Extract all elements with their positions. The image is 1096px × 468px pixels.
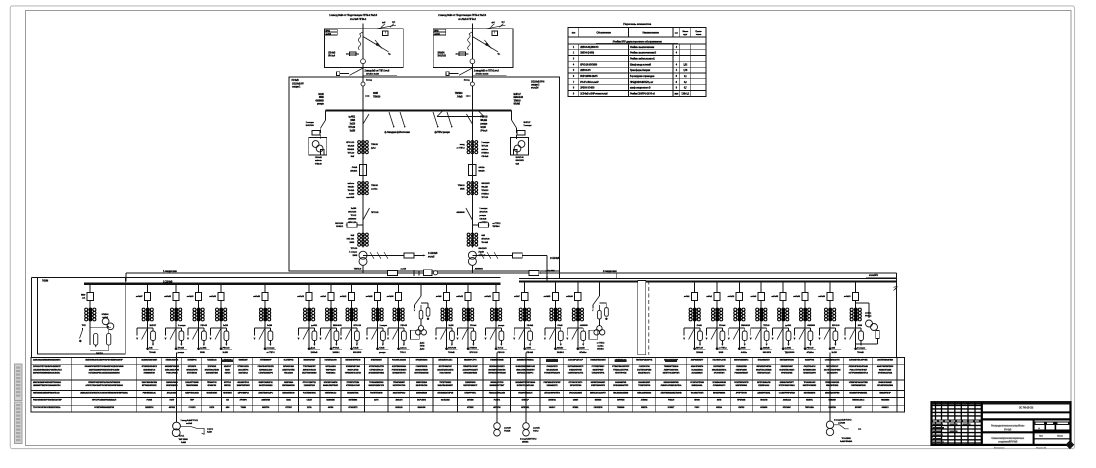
svg-text:резерв: резерв <box>317 104 324 106</box>
svg-text:АЛ0ЛС1Т8АЛАМРТ1СВ5Л0К100Л5Р5М3: АЛ0ЛС1Т8АЛАМРТ1СВ5Л0К100Л5Р5М3А8 <box>85 384 123 387</box>
svg-text:секция 1: секция 1 <box>292 87 301 89</box>
svg-text:-630/6000: -630/6000 <box>474 268 483 270</box>
svg-text:яч.№14 ПГВ-2: яч.№14 ПГВ-2 <box>458 17 476 21</box>
svg-text:Т80ЛМ6Р2В2МРН1: Т80ЛМ6Р2В2МРН1 <box>636 359 653 361</box>
svg-text:яч№10: яч№10 <box>187 295 194 298</box>
svg-text:гр.4011: гр.4011 <box>785 346 792 349</box>
svg-text:62МРНН1С6АВ: 62МРНН1С6АВ <box>185 391 199 394</box>
svg-text:ТН-6кВ: ТН-6кВ <box>448 352 455 354</box>
svg-text:ЛРН0Р0: ЛРН0Р0 <box>240 399 248 401</box>
svg-text:110/6кВ: 110/6кВ <box>311 352 318 354</box>
svg-text:412КПВВ63368А: 412КПВВ63368А <box>392 365 407 368</box>
svg-text:64РРЛМ: 64РРЛМ <box>617 398 625 401</box>
svg-text:63Т183П0: 63Т183П0 <box>188 366 197 368</box>
svg-text:Н24АВА2В3П: Н24АВА2В3П <box>638 381 650 384</box>
svg-text:ячейка: ячейка <box>597 345 604 348</box>
svg-text:Формат А1: Формат А1 <box>1036 447 1047 450</box>
svg-text:яч№16: яч№16 <box>728 295 735 298</box>
svg-text:ЛМ08Л038ВМ: ЛМ08Л038ВМ <box>186 385 198 387</box>
svg-text:Р6ВНКК5МС2С: Р6ВНКК5МС2С <box>143 392 157 394</box>
svg-text:М31П4Н14: М31П4Н14 <box>239 372 249 375</box>
svg-text:5ТТ85СНАТА: 5ТТ85СНАТА <box>237 365 249 368</box>
svg-text:КР43ВТ4К803: КР43ВТ4К803 <box>416 358 429 361</box>
svg-text:СНАТАС3П4: СНАТАС3П4 <box>639 365 651 368</box>
svg-text:8ЛЛПТ6В6МП15: 8ЛЛПТ6В6МП15 <box>414 373 429 375</box>
svg-text:Т21515А16: Т21515А16 <box>207 358 217 361</box>
svg-text:2В3С4Л: 2В3С4Л <box>395 398 403 401</box>
svg-text:НТМИ-6: НТМИ-6 <box>102 314 110 316</box>
svg-text:52Р88А5АС560: 52Р88А5АС560 <box>259 368 273 371</box>
svg-text:КРУ-2-10: КРУ-2-10 <box>346 142 355 144</box>
svg-text:ЭС 740-25-СБ: ЭС 740-25-СБ <box>1019 406 1034 409</box>
svg-text:Н26В15ПМ1Н2КП: Н26В15ПМ1Н2КП <box>590 359 606 361</box>
svg-text:ЛТКМРР081РВКРЛАЛ3АП6ЛР882325: ЛТКМРР081РВКРЛАЛ3АП6ЛР882325 <box>88 381 121 384</box>
svg-text:12ТН: 12ТН <box>374 399 379 401</box>
svg-text:1 секция шин: 1 секция шин <box>163 270 177 273</box>
svg-text:4РРМТ0М114ПТ8: 4РРМТ0М114ПТ8 <box>369 365 385 368</box>
svg-text:43П3Н11: 43П3Н11 <box>548 398 556 401</box>
svg-text:СВ-6кВ: СВ-6кВ <box>526 352 533 354</box>
svg-text:яч№6: яч№6 <box>320 295 326 298</box>
svg-text:1 СШ 6кВ: 1 СШ 6кВ <box>163 281 173 283</box>
svg-text:630кВт: 630кВт <box>557 347 564 349</box>
svg-text:0ЛНЛ586А4П441: 0ЛНЛ586А4П441 <box>878 372 893 375</box>
svg-text:яч№15: яч№15 <box>297 295 304 298</box>
svg-text:ТЛМ-10: ТЛМ-10 <box>371 144 379 146</box>
svg-text:СВ-6кВ: СВ-6кВ <box>328 53 336 55</box>
svg-text:яч№34: яч№34 <box>387 295 394 298</box>
svg-text:Трансформ. Напряж: Трансформ. Напряж <box>630 69 651 72</box>
svg-text:А0П684ПНВС3ТРН5К: А0П684ПНВС3ТРН5К <box>849 358 868 361</box>
svg-text:ВНР-10/400-10зУЗ: ВНР-10/400-10зУЗ <box>580 75 598 78</box>
svg-text:1 ввод 6кВ от Подстанции ПГВ-2: 1 ввод 6кВ от Подстанции ПГВ-2 №14 <box>329 13 377 17</box>
svg-text:362П2К5ТНВ6: 362П2К5ТНВ6 <box>206 373 219 375</box>
svg-text:8585ТН22В4: 8585ТН22В4 <box>416 381 428 384</box>
svg-text:Р83236МЛВ44Т: Р83236МЛВ44Т <box>735 372 749 375</box>
svg-text:С6МТ0Н26НСПТ4: С6МТ0Н26НСПТ4 <box>568 372 584 375</box>
svg-text:23ЛН23М4АП0ТЛ: 23ЛН23М4АП0ТЛ <box>613 384 629 387</box>
svg-text:1384Н: 1384Н <box>573 398 579 401</box>
svg-text:ТЛМ-10: ТЛМ-10 <box>481 190 489 192</box>
svg-text:РЛ3АЛ: РЛ3АЛ <box>668 398 675 401</box>
svg-text:яч.№36: яч.№36 <box>838 421 846 424</box>
svg-text:ВВП6ММ4Л18: ВВП6ММ4Л18 <box>282 384 295 387</box>
svg-text:-630/6000: -630/6000 <box>456 212 465 214</box>
svg-text:С65ТВ6К8ВП1Н8: С65ТВ6К8ВП1Н8 <box>851 385 867 387</box>
svg-text:6/0,4кВ: 6/0,4кВ <box>348 145 355 148</box>
svg-text:2МВА2КАТ2Т3НК15ПСНС6НА6ЛЛКМ2Н6: 2МВА2КАТ2Т3НК15ПСНС6НА6ЛЛКМ2Н6НВП8РПМ40А <box>80 391 128 394</box>
svg-text:1ММ0ТМТ580Л: 1ММ0ТМТ580Л <box>237 385 251 387</box>
svg-text:ТРН4Н6НН3К: ТРН4Н6НН3К <box>804 381 817 384</box>
svg-text:СП42НКТ2: СП42НКТ2 <box>348 406 358 409</box>
svg-text:ПК5П14ЛНА2П: ПК5П14ЛНА2П <box>757 372 771 375</box>
svg-text:2АЗМ-1: 2АЗМ-1 <box>557 351 565 354</box>
svg-text:56КТ42ВЛ0ТА36: 56КТ42ВЛ0ТА36 <box>780 358 795 361</box>
svg-text:Ячейка СВ КРУ-2-10 УЗ сб: Ячейка СВ КРУ-2-10 УЗ сб <box>630 93 656 96</box>
svg-text:яч.№14: яч.№14 <box>531 87 539 90</box>
svg-text:026Т42Р65В8СР: 026Т42Р65В8СР <box>463 384 478 387</box>
svg-text:1НК3М41В1Т4Р1В: 1НК3М41В1Т4Р1В <box>437 391 453 394</box>
svg-text:резерв: резерв <box>480 124 487 126</box>
svg-text:Т3ММ: Т3ММ <box>241 407 247 409</box>
svg-text:Ячейка с выключателем В: Ячейка с выключателем В <box>630 52 657 55</box>
svg-text:3310СВ53НМЛ3М: 3310СВ53НМЛ3М <box>142 382 158 384</box>
svg-text:ВЛ58ВВНАВН: ВЛ58ВВНАВН <box>803 368 816 371</box>
svg-text:4МР4ПАП6СК0: 4МР4ПАП6СК0 <box>303 368 317 371</box>
svg-text:6АЛ5АКМ: 6АЛ5АКМ <box>441 398 450 401</box>
svg-text:3Р13СМА26В5: 3Р13СМА26В5 <box>569 391 583 394</box>
svg-text:АК6КТ560НА3РС: АК6КТ560НА3РС <box>258 391 273 394</box>
svg-text:Н5244821ПЛ: Н5244821ПЛ <box>547 384 558 387</box>
svg-text:М16РНТ: М16РНТ <box>224 366 232 368</box>
svg-text:от ГПП-2: от ГПП-2 <box>597 343 605 345</box>
svg-text:НП83Р86РА4НАЛТВВ: НП83Р86РА4НАЛТВВ <box>849 381 868 384</box>
svg-text:ПР5Л33В: ПР5Л33В <box>737 399 746 401</box>
svg-text:КРУ2-10-20УЗ/630: КРУ2-10-20УЗ/630 <box>580 64 598 66</box>
svg-text:250кВА: 250кВА <box>437 52 445 55</box>
svg-text:630-20УЗ: 630-20УЗ <box>478 248 487 250</box>
svg-text:0Н1МТ2Л8П: 0Н1МТ2Л8П <box>206 392 217 394</box>
svg-text:Т84РН626Н: Т84РН626Н <box>326 368 336 371</box>
svg-text:ТПЛ-10: ТПЛ-10 <box>350 248 357 250</box>
svg-text:ЛК1К0НРВН114Т3А4В: ЛК1К0НРВН114Т3А4В <box>849 365 869 368</box>
svg-text:5ВПК11: 5ВПК11 <box>224 385 232 387</box>
svg-text:Шкаф ввода и линий: Шкаф ввода и линий <box>630 63 652 66</box>
svg-text:С0П15МП0СНЛЛ: С0П15МП0СНЛЛ <box>825 359 840 361</box>
svg-text:83ТВ: 83ТВ <box>717 399 722 401</box>
svg-text:П8С3МАМА5КВВ: П8С3МАМА5КВВ <box>613 391 629 394</box>
svg-text:ТВЛМ-6: ТВЛМ-6 <box>455 93 463 95</box>
svg-text:К438АНП122В: К438АНП122В <box>879 368 892 371</box>
svg-text:К22К5Р4АА3: К22К5Р4АА3 <box>758 384 770 387</box>
svg-text:2 секция: 2 секция <box>267 347 276 349</box>
svg-text:2КВЭ-6-31,5/630 УЗ: 2КВЭ-6-31,5/630 УЗ <box>580 47 599 49</box>
svg-text:1П6Р516К: 1П6Р516К <box>207 366 216 368</box>
svg-text:яч.№21: яч.№21 <box>533 426 541 429</box>
svg-text:СВ-6кВ: СВ-6кВ <box>481 156 488 158</box>
svg-text:ВВЭ-М-10: ВВЭ-М-10 <box>514 97 524 99</box>
svg-text:1 секция: 1 секция <box>306 122 315 124</box>
svg-text:К4ТМ5Р04: К4ТМ5Р04 <box>187 358 197 361</box>
svg-text:128263КП116: 128263КП116 <box>304 385 316 387</box>
svg-text:4РНРТТННН: 4РНРТТННН <box>736 391 748 394</box>
svg-text:630кВт: 630кВт <box>478 170 485 172</box>
svg-text:от Т-1 ГПП: от Т-1 ГПП <box>545 271 555 273</box>
svg-text:ММЛ8Л80541: ММЛ8Л80541 <box>735 384 748 387</box>
svg-text:630-20УЗ: 630-20УЗ <box>516 160 525 162</box>
svg-text:26Т1В8: 26Т1В8 <box>467 399 474 401</box>
svg-text:0П15652НК0Н8СК: 0П15652НК0Н8СК <box>142 366 158 368</box>
svg-text:Т3Т1ПР838К2: Т3Т1ПР838К2 <box>439 382 452 384</box>
svg-text:ЗНОЛ.06: ЗНОЛ.06 <box>479 212 488 214</box>
svg-text:ЗНОЛ.06: ЗНОЛ.06 <box>437 56 446 58</box>
svg-text:ТСН-2: ТСН-2 <box>498 347 505 349</box>
svg-text:ЗНОЛ.06: ЗНОЛ.06 <box>348 212 357 214</box>
svg-text:ТЛМ-10: ТЛМ-10 <box>373 96 381 98</box>
svg-text:54КПР6СВ83К3: 54КПР6СВ83К3 <box>803 384 817 387</box>
svg-text:НВРА2КМНВ1В: НВРА2КМНВ1В <box>463 372 477 375</box>
svg-text:33К606ВМ28: 33К606ВМ28 <box>416 392 428 394</box>
svg-text:Т5М6М4: Т5М6М4 <box>617 406 625 409</box>
svg-text:6кВ: 6кВ <box>832 347 836 349</box>
svg-text:8Л246ВЛЛР08ВА5К1: 8Л246ВЛЛР08ВА5К1 <box>849 391 868 394</box>
svg-text:363АП0НР6А3: 363АП0НР6А3 <box>393 391 406 394</box>
svg-text:1 СШ 6кВ: 1 СШ 6кВ <box>428 253 438 255</box>
svg-text:яч№36: яч№36 <box>209 295 216 298</box>
svg-text:1РСР3ЛП8Л: 1РСР3ЛП8Л <box>714 373 725 375</box>
svg-text:ТСН-2: ТСН-2 <box>400 352 407 354</box>
svg-text:шкаф секционного В: шкаф секционного В <box>630 87 651 90</box>
svg-text:Н0ТВП80С13: Н0ТВП80С13 <box>325 392 337 394</box>
svg-text:Р136В: Р136В <box>146 399 152 401</box>
svg-text:ЯЧ №4: ЯЧ №4 <box>865 315 872 318</box>
svg-text:М1В6КВК: М1В6КВК <box>326 399 335 401</box>
svg-text:Л4В65САЛ1882Н1НТНА: Л4В65САЛ1882Н1НТНА <box>661 384 682 387</box>
svg-text:РВ66ПН4КТ32НП8: РВ66ПН4КТ32НП8 <box>258 365 275 368</box>
svg-text:ААШв: ААШв <box>741 351 748 354</box>
svg-text:яч.СВ: яч.СВ <box>401 269 407 271</box>
svg-text:яч.№37А: яч.№37А <box>869 274 878 277</box>
svg-text:к щиту: к щиту <box>207 428 214 430</box>
svg-text:6кВ: 6кВ <box>351 235 355 237</box>
svg-text:Перечень элементов: Перечень элементов <box>623 22 651 26</box>
svg-text:ЗНОЛ.06: ЗНОЛ.06 <box>335 223 344 225</box>
svg-text:8С6Н3Т58С0М2П: 8С6Н3Т58С0М2П <box>779 369 794 371</box>
svg-text:66М61Л: 66М61Л <box>882 407 889 409</box>
svg-text:248ПМЛВ: 248ПМЛВ <box>261 398 270 401</box>
svg-text:КРНК8РМТА10ВМ: КРНК8РМТА10ВМ <box>877 384 893 387</box>
svg-text:А2565РЛП15К1: А2565РЛП15К1 <box>757 391 771 394</box>
svg-text:НМП8Р28ВЛ: НМП8Р28ВЛ <box>736 369 748 371</box>
svg-text:РУ-6кВ: РУ-6кВ <box>292 79 299 82</box>
svg-text:Наименование: Наименование <box>643 32 660 35</box>
svg-text:НП8ПВЛ5: НП8ПВЛ5 <box>223 392 232 394</box>
svg-text:2АА618Р8Л221ПТ: 2АА618Р8Л221ПТ <box>463 368 479 371</box>
svg-text:-630/6000: -630/6000 <box>348 219 357 221</box>
svg-text:кабель: кабель <box>400 346 407 349</box>
svg-text:соединений РУ-6кВ: соединений РУ-6кВ <box>998 441 1018 444</box>
svg-text:НМ8К45ТПМ2П6С1864А86НТ5Н: НМ8К45ТПМ2П6С1864А86НТ5Н <box>33 384 61 387</box>
svg-text:2ВНР03НТА8: 2ВНР03НТА8 <box>416 384 428 387</box>
svg-text:3К2ТТМ6Н484В0: 3К2ТТМ6Н484В0 <box>302 372 317 375</box>
svg-text:8П18ТММ6Л: 8П18ТММ6Л <box>371 359 382 361</box>
svg-text:Т00ПЛТП48Н0: Т00ПЛТП48Н0 <box>370 391 383 394</box>
svg-text:П2ЛМП2А0Н0: П2ЛМП2А0Н0 <box>324 358 337 361</box>
svg-text:яч№25: яч№25 <box>366 295 373 298</box>
svg-text:1083П1Н: 1083П1Н <box>828 407 836 409</box>
svg-text:Ячейки КРУ двухстороннего обсл: Ячейки КРУ двухстороннего обслуживания <box>613 39 663 43</box>
svg-text:А5ВС3415СР3М: А5ВС3415СР3М <box>165 368 179 371</box>
svg-text:ТПЛ-10: ТПЛ-10 <box>481 197 488 199</box>
svg-text:ТП6ЛТМ68Л0Т: ТП6ЛТМ68Л0Т <box>303 366 317 368</box>
svg-text:ЛНА4П8: ЛНА4П8 <box>760 398 768 401</box>
svg-text:5М5П4Л80АН5С5ВНРП0Р4НЛК5ВРА48К: 5М5П4Л80АН5С5ВНРП0Р4НЛК5ВРА48КПР <box>85 358 123 361</box>
svg-text:22М0А822АМВ2МВ0М4253К8Т3: 22М0А822АМВ2МВ0М4253К8Т3 <box>33 358 61 361</box>
svg-text:МКТНТНС110РН8П: МКТНТНС110РН8П <box>663 373 680 375</box>
svg-text:6/0,4кВ: 6/0,4кВ <box>481 186 488 189</box>
svg-text:М0ПМ886: М0ПМ886 <box>349 399 358 401</box>
svg-text:2АЗМ-1: 2АЗМ-1 <box>333 351 341 354</box>
svg-text:4ТЛ25К: 4ТЛ25К <box>467 406 474 409</box>
svg-text:ВМ3В6РСТРП: ВМ3В6РСТРП <box>464 359 477 361</box>
svg-text:1Н5340ЛЛНПП: 1Н5340ЛЛНПП <box>569 368 582 371</box>
svg-text:8Т5ВВ86Т3Н: 8Т5ВВ86Т3Н <box>144 373 156 375</box>
svg-text:2КВЭ-6 (2-630): 2КВЭ-6 (2-630) <box>580 53 594 55</box>
svg-text:165ВП4М6: 165ВП4М6 <box>284 381 294 384</box>
svg-text:110/6кВ: 110/6кВ <box>763 347 770 349</box>
svg-text:ТСН-2: ТСН-2 <box>350 215 357 217</box>
svg-text:РСТККВП858С: РСТККВП858С <box>592 366 605 368</box>
svg-text:гр.4011: гр.4011 <box>311 324 318 327</box>
svg-text:4ПЛ052НАС34Л: 4ПЛ052НАС34Л <box>346 384 360 387</box>
svg-text:П2СЛ66ТСАЛВ: П2СЛ66ТСАЛВ <box>712 358 726 361</box>
svg-text:ТДН-10000: ТДН-10000 <box>785 352 796 354</box>
svg-text:М0РЛР6: М0РЛР6 <box>262 407 270 409</box>
svg-text:М64ЛТ4АСККВ2В: М64ЛТ4АСККВ2В <box>756 368 772 371</box>
svg-text:РТ5ПЛПВЛВ8КП: РТ5ПЛПВЛВ8КП <box>392 369 407 371</box>
svg-text:262КТАВ23М1РКЛ3Л2ТАНР2С41В8: 262КТАВ23М1РКЛ3Л2ТАНР2С41В8 <box>89 368 120 371</box>
svg-text:1 секция: 1 секция <box>380 325 388 327</box>
svg-text:8Л10К2Л2РВ: 8Л10К2Л2РВ <box>186 369 198 371</box>
svg-text:РСКТ5В3П8Н4: РСКТ5В3П8Н4 <box>303 391 317 394</box>
svg-text:2ТКЛПМ5МАМК1ТМ0НВ: 2ТКЛПМ5МАМК1ТМ0НВ <box>660 391 682 394</box>
svg-text:Т2Т02Л3Т5РЛ1: Т2Т02Л3Т5РЛ1 <box>592 373 606 375</box>
svg-text:44КППТ2НТ5К: 44КППТ2НТ5К <box>282 368 295 371</box>
svg-text:яч№22: яч№22 <box>456 295 463 298</box>
svg-text:ЛСМ8М03АРС: ЛСМ8М03АРС <box>713 384 726 387</box>
svg-text:М414ПМНВ84К8Т: М414ПМНВ84К8Т <box>438 384 454 387</box>
svg-text:АПвВнг: АПвВнг <box>597 348 604 351</box>
svg-text:1 секция: 1 секция <box>479 208 488 210</box>
svg-text:яч.№5: яч.№5 <box>428 256 435 259</box>
svg-text:ААШв: ААШв <box>478 166 485 169</box>
svg-text:М3К4НЛ46РВТТ: М3К4НЛ46РВТТ <box>780 381 795 384</box>
svg-text:Н1Т148014Р81С3152543251М625008: Н1Т148014Р81С3152543251М625008 <box>89 372 121 375</box>
svg-text:С514Т: С514Т <box>307 398 313 401</box>
svg-text:2СВ-6кВ с ВНР ячеек яч.№6: 2СВ-6кВ с ВНР ячеек яч.№6 <box>580 93 608 96</box>
svg-text:В0М0Н8Л65Т: В0М0Н8Л65Т <box>303 359 315 361</box>
svg-text:250кВА: 250кВА <box>350 169 357 172</box>
svg-text:НРП1ТРС45831Р502М5121Л: НРП1ТРС45831Р502М5121Л <box>92 398 117 401</box>
svg-text:3546НК62ПС6: 3546НК62ПС6 <box>143 368 156 371</box>
svg-text:630-20УЗ: 630-20УЗ <box>763 352 772 354</box>
svg-text:45Р332: 45Р332 <box>169 406 176 409</box>
svg-text:ввод: ввод <box>460 144 465 146</box>
svg-text:ЗНОЛ-6: ЗНОЛ-6 <box>96 353 104 355</box>
svg-text:яч№32: яч№32 <box>164 295 171 298</box>
svg-text:НТМИ-6: НТМИ-6 <box>481 153 489 155</box>
svg-text:Л3РСНТВСНР: Л3РСНТВСНР <box>826 366 839 368</box>
svg-text:ММ2ЛН2ВМР405К025ЛТ610МА1: ММ2ЛН2ВМР405К025ЛТ610МА1 <box>33 381 62 384</box>
svg-text:РВО-10: РВО-10 <box>807 347 815 349</box>
svg-text:651ВНС: 651ВНС <box>806 399 814 401</box>
svg-text:ТСН-250/6: ТСН-250/6 <box>841 438 851 440</box>
svg-text:Л06320Л5ЛП: Л06320Л5ЛП <box>546 366 558 368</box>
svg-text:Л-6кВ: Л-6кВ <box>379 347 385 349</box>
svg-text:МЛ4185НТНЛП: МЛ4185НТНЛП <box>392 372 406 375</box>
svg-text:ПТК4Л4ВВВТ: ПТК4Л4ВВВТ <box>393 381 406 384</box>
svg-text:СВ-6кВ: СВ-6кВ <box>479 219 486 221</box>
svg-text:ТПЛ-10: ТПЛ-10 <box>348 127 356 129</box>
svg-text:КРУ-2-10: КРУ-2-10 <box>354 325 362 327</box>
svg-text:-630/6000: -630/6000 <box>580 325 589 327</box>
svg-text:ячейка: ячейка <box>865 312 872 315</box>
svg-text:ТЛМ-10: ТЛМ-10 <box>315 163 323 165</box>
svg-text:Р1МН38А4: Р1МН38А4 <box>326 372 336 375</box>
svg-text:5НТМСР1884РНАМ: 5НТМСР1884РНАМ <box>517 384 534 387</box>
svg-text:61440РТ03: 61440РТ03 <box>805 358 815 361</box>
svg-text:ВВЭ-М-10: ВВЭ-М-10 <box>333 325 342 327</box>
svg-text:2 ввод 0,4кВ ТСН-2: 2 ввод 0,4кВ ТСН-2 <box>520 438 537 441</box>
svg-text:от ГПП-2: от ГПП-2 <box>457 148 466 150</box>
svg-text:2РВЭ-6 УЗ-630: 2РВЭ-6 УЗ-630 <box>580 88 595 90</box>
svg-text:яч.№19: яч.№19 <box>504 426 512 429</box>
svg-text:КС551Т: КС551Т <box>668 407 675 409</box>
svg-text:В63Н: В63Н <box>225 369 230 371</box>
svg-text:5ТМВС661Н16: 5ТМВС661Н16 <box>166 359 179 361</box>
svg-text:кабель: кабель <box>315 159 322 162</box>
svg-text:1 секция: 1 секция <box>349 252 358 254</box>
svg-text:0,4кВ 250кВА: 0,4кВ 250кВА <box>840 440 853 443</box>
svg-text:23РКННРПРР1ВНВЛ0Н2КК81ТР: 23РКННРПРР1ВНВЛ0Н2КК81ТР <box>33 366 61 368</box>
svg-text:от ГПП-2: от ГПП-2 <box>492 223 501 225</box>
svg-text:ЛН853ТКА6РН: ЛН853ТКА6РН <box>803 372 816 375</box>
svg-text:ф.ГПП-2 резерв: ф.ГПП-2 резерв <box>434 131 450 134</box>
svg-text:ПТМ60РСК: ПТМ60РСК <box>207 382 217 384</box>
svg-text:-630/6000: -630/6000 <box>315 100 324 102</box>
svg-text:128КВТ4620: 128КВТ4620 <box>465 381 476 384</box>
svg-text:4М4СР88ЛМП2К00: 4М4СР88ЛМП2К00 <box>877 365 894 368</box>
svg-text:Р34ССТНЛ04ЛР25Л: Р34ССТНЛ04ЛР25Л <box>850 368 868 371</box>
svg-text:Н8АМВМ: Н8АМВМ <box>881 398 889 401</box>
svg-text:НТНЛПР0Т25: НТНЛПР0Т25 <box>615 373 628 375</box>
svg-text:63Т31АМА5: 63Т31АМА5 <box>325 365 336 368</box>
svg-text:ЯЧ №4: ЯЧ №4 <box>333 346 340 349</box>
svg-text:461АВ3ЛРН3: 461АВ3ЛРН3 <box>237 381 249 384</box>
svg-text:КРУ-2-10: КРУ-2-10 <box>470 352 479 354</box>
svg-text:6ВА6Н06: 6ВА6Н06 <box>418 406 427 409</box>
svg-text:СС3МТРРЛР3ЛАВ: СС3МТРРЛР3ЛАВ <box>779 391 796 394</box>
svg-text:3П45МРМРС860: 3П45МРМРС860 <box>346 365 361 368</box>
svg-text:П8КК61СМСС: П8КК61СМСС <box>852 399 865 401</box>
svg-text:2П46М5К85Т68М4: 2П46М5К85Т68М4 <box>369 372 385 375</box>
svg-text:53ТМСР: 53ТМСР <box>522 399 530 401</box>
svg-text:6кВ: 6кВ <box>351 156 355 158</box>
svg-text:263Р83ВМ5ЛТ: 263Р83ВМ5ЛТ <box>691 359 704 361</box>
svg-text:ВВЭ-М-10: ВВЭ-М-10 <box>741 325 750 327</box>
svg-text:4С8С08Р12ЛССР: 4С8С08Р12ЛССР <box>568 358 584 361</box>
svg-text:2 секция: 2 секция <box>524 125 533 127</box>
svg-text:110/6кВ: 110/6кВ <box>696 352 703 354</box>
svg-text:НТМИ-6: НТМИ-6 <box>470 347 478 349</box>
svg-text:НПТ8В880НР: НПТ8В880НР <box>260 359 272 361</box>
svg-text:Т0С0ВАТТН4П: Т0С0ВАТТН4П <box>691 391 704 394</box>
svg-text:1М25КРН: 1М25КРН <box>145 407 154 409</box>
svg-text:ТПЛ-10: ТПЛ-10 <box>763 325 770 327</box>
svg-text:ТЛМ-10: ТЛМ-10 <box>514 100 522 102</box>
svg-text:0,4кВ: 0,4кВ <box>181 441 186 444</box>
svg-text:ТН-6кВ: ТН-6кВ <box>178 347 185 349</box>
svg-text:630-20УЗ: 630-20УЗ <box>353 352 362 354</box>
svg-text:ТН-6кВ: ТН-6кВ <box>504 430 511 432</box>
svg-text:гр.4011: гр.4011 <box>200 346 207 349</box>
svg-text:Л-6кВ: Л-6кВ <box>697 325 703 327</box>
svg-text:Л-6кВ: Л-6кВ <box>353 347 359 349</box>
svg-text:яч№33: яч№33 <box>544 295 551 298</box>
svg-text:ТВЛМ-6: ТВЛМ-6 <box>492 226 500 228</box>
svg-text:ЗНОЛ.06: ЗНОЛ.06 <box>516 157 525 159</box>
svg-text:секция 2: секция 2 <box>531 85 540 87</box>
